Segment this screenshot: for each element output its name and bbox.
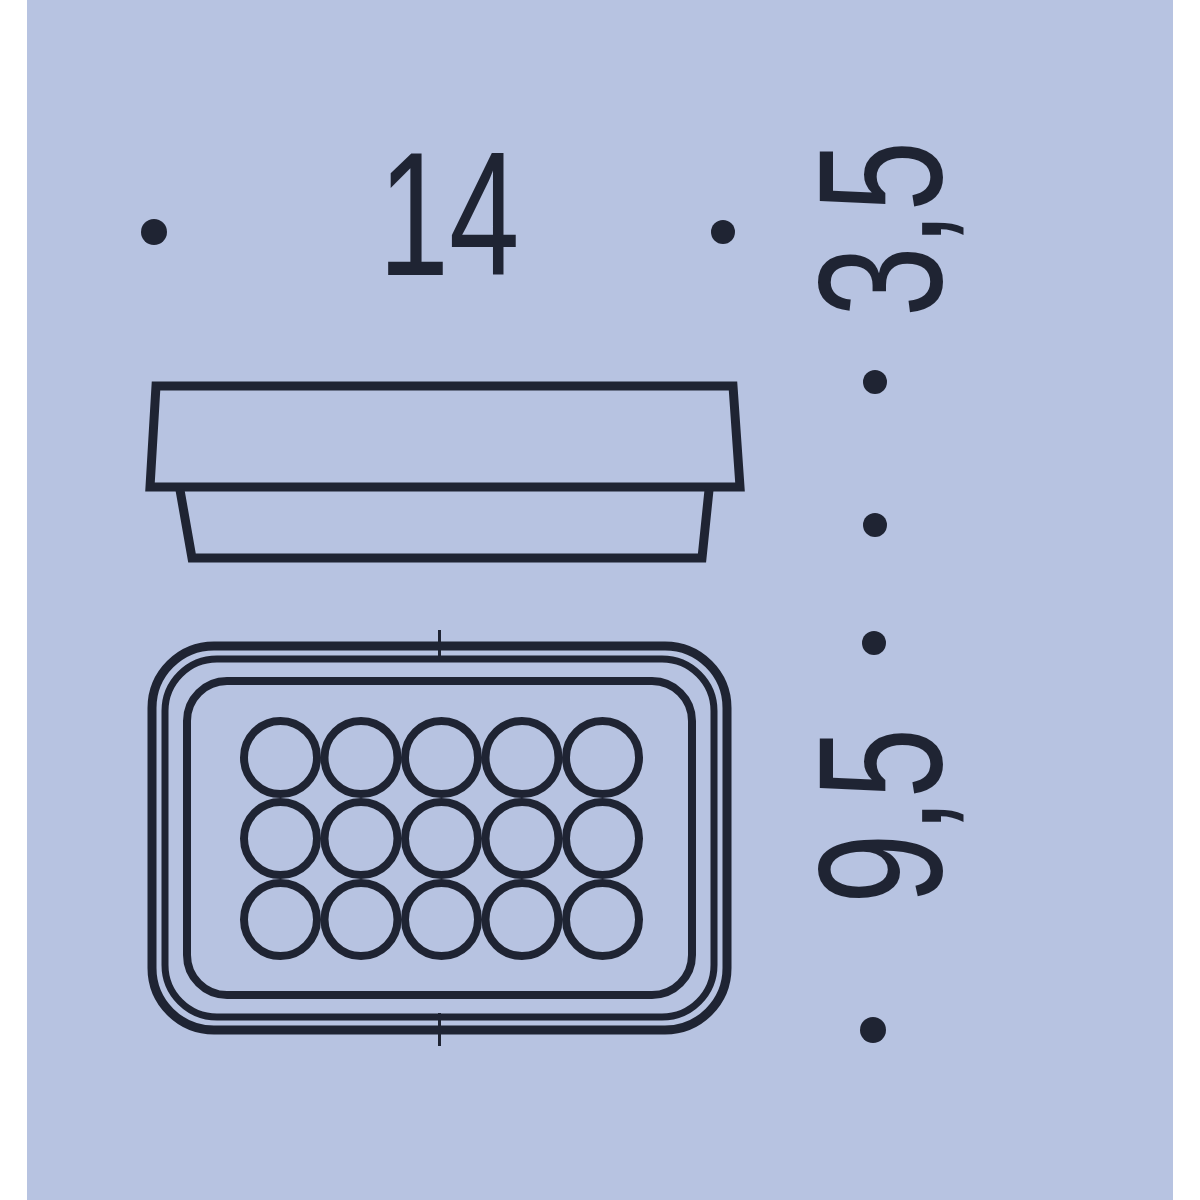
side-view xyxy=(150,386,740,558)
side-view-plate xyxy=(150,386,740,487)
dimension-width-label: 14 xyxy=(379,115,520,311)
dimension-dot-depth-top xyxy=(862,631,886,655)
drain-hole xyxy=(244,883,317,956)
drain-hole xyxy=(325,721,398,794)
dimension-side-height-label: 3,5 xyxy=(781,141,977,317)
drain-hole xyxy=(566,883,639,956)
drain-hole xyxy=(244,721,317,794)
side-view-skirt xyxy=(180,490,709,558)
drain-hole xyxy=(405,721,478,794)
dimension-dot-width-right xyxy=(711,220,735,244)
drain-hole xyxy=(325,883,398,956)
drain-hole xyxy=(566,802,639,875)
dimension-dot-side-top xyxy=(863,370,887,394)
drain-hole xyxy=(566,721,639,794)
dimension-dot-side-bottom xyxy=(863,513,887,537)
drain-hole xyxy=(325,802,398,875)
dimension-dot-width-left xyxy=(141,219,167,245)
drain-hole xyxy=(486,721,559,794)
drain-hole xyxy=(405,883,478,956)
dimension-depth: 9,5 xyxy=(781,631,977,1043)
drain-hole xyxy=(486,802,559,875)
drain-hole xyxy=(405,802,478,875)
drain-hole xyxy=(486,883,559,956)
top-view xyxy=(152,630,727,1046)
dimension-dot-depth-bottom xyxy=(860,1017,886,1043)
dimension-drawing: 14 3,5 9,5 xyxy=(0,0,1200,1200)
dimension-depth-label: 9,5 xyxy=(781,728,977,904)
dimension-width: 14 xyxy=(141,115,735,311)
drain-hole xyxy=(244,802,317,875)
dimension-side-height: 3,5 xyxy=(781,141,977,537)
drain-hole-grid xyxy=(244,721,639,956)
soap-dish-drawing: 14 3,5 9,5 xyxy=(0,0,1200,1200)
